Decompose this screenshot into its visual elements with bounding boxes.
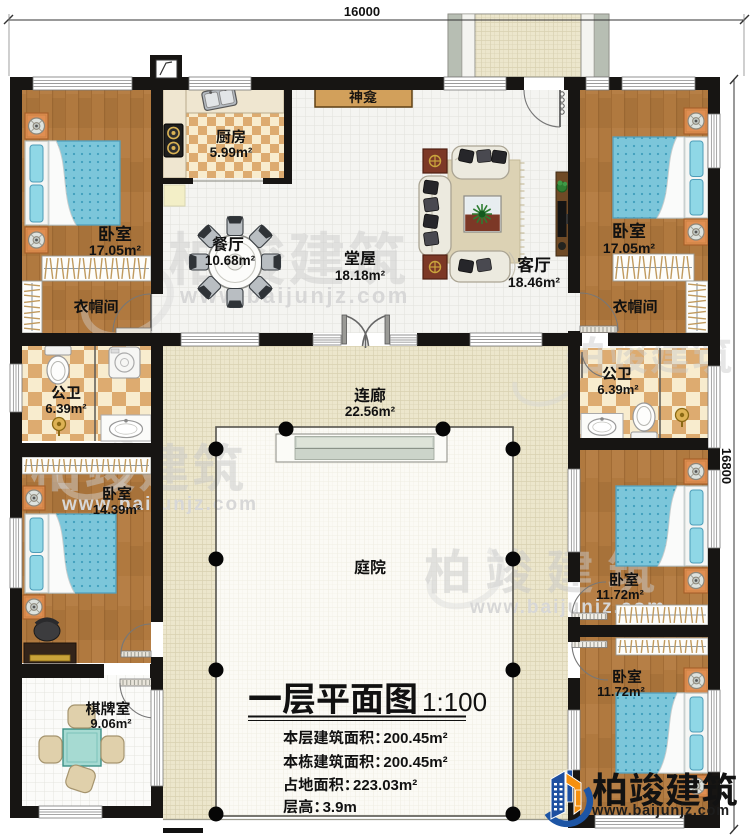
- svg-text:10.68m²: 10.68m²: [205, 253, 256, 268]
- svg-text:17.05m²: 17.05m²: [89, 242, 141, 258]
- svg-text:14.39m²: 14.39m²: [93, 502, 142, 517]
- svg-text:200.45m²: 200.45m²: [383, 754, 447, 771]
- svg-text:17.05m²: 17.05m²: [603, 240, 655, 256]
- svg-text:16800: 16800: [719, 448, 734, 484]
- svg-text:1:100: 1:100: [422, 687, 487, 717]
- svg-text:18.46m²: 18.46m²: [508, 274, 560, 290]
- svg-text:6.39m²: 6.39m²: [597, 382, 639, 397]
- svg-text:5.99m²: 5.99m²: [210, 145, 253, 160]
- svg-text:22.56m²: 22.56m²: [345, 404, 396, 419]
- svg-text:11.72m²: 11.72m²: [596, 587, 644, 602]
- svg-text:18.18m²: 18.18m²: [335, 268, 386, 283]
- svg-text:3.9m: 3.9m: [323, 799, 357, 816]
- svg-text:223.03m²: 223.03m²: [353, 777, 417, 794]
- svg-text:9.06m²: 9.06m²: [90, 716, 132, 731]
- svg-text:www.baijunjz.com: www.baijunjz.com: [591, 803, 730, 819]
- svg-text:11.72m²: 11.72m²: [597, 684, 645, 699]
- svg-text:200.45m²: 200.45m²: [383, 730, 447, 747]
- svg-text:6.39m²: 6.39m²: [45, 401, 87, 416]
- svg-text:16000: 16000: [344, 4, 380, 19]
